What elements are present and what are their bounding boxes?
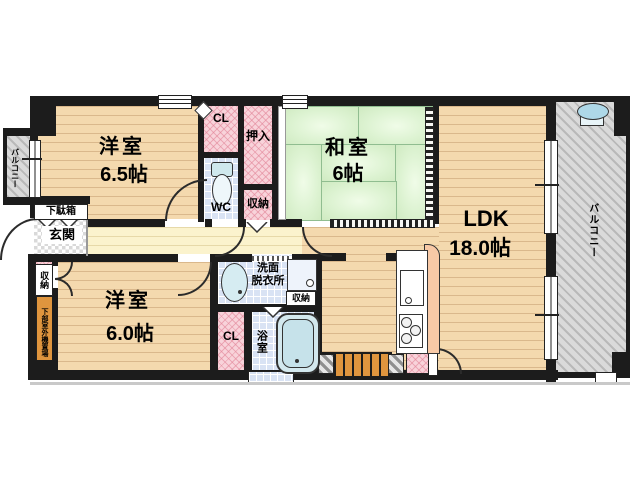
balcony-right-label: バルコニー — [582, 186, 602, 274]
room1-size: 6.5帖 — [62, 162, 186, 188]
wall-corridor-bottom-1 — [28, 254, 178, 262]
kitchen-hatch-right — [388, 354, 404, 374]
fusuma-track-tatami-south[interactable] — [330, 219, 435, 228]
entrance-step-line — [86, 220, 88, 256]
balcony-left-outer-edge — [3, 130, 7, 205]
fusuma-track-tatami-east[interactable] — [425, 107, 434, 220]
room1-name: 洋室 — [62, 134, 182, 160]
tatami-room-size: 6帖 — [300, 162, 396, 186]
balcony-left-top-edge — [3, 128, 38, 136]
closet-top-label: CL — [204, 110, 238, 128]
oshiire-label: 押入 — [241, 128, 275, 146]
window-balcony-right-north[interactable] — [544, 140, 558, 234]
wall-oshiire-storage-divider — [244, 184, 272, 190]
wc-label: WC — [204, 200, 238, 216]
outdoor-unit-label: 下部室外機置場 — [37, 298, 51, 366]
fusuma-track-tatami-west[interactable] — [278, 106, 286, 220]
storage-entry-label: 収納 — [35, 264, 53, 296]
window-latch-mark — [535, 184, 559, 186]
ldk-size: 18.0帖 — [420, 236, 540, 262]
wall-leftcolumn-b — [52, 288, 58, 372]
window-latch-mark — [535, 314, 559, 316]
washroom-label: 洗面脱衣所 — [242, 258, 294, 292]
floor-plan: 洋室 6.5帖 和室 6帖 LDK 18.0帖 洋室 6.0帖 CL 押入 WC… — [0, 0, 640, 480]
window-latch-mark — [22, 158, 42, 160]
kitchen-pink-panel — [406, 352, 430, 374]
wall-cl-wc-divider — [204, 152, 238, 158]
entrance-door-swing[interactable] — [0, 218, 38, 260]
window-top-tatami[interactable] — [282, 95, 308, 109]
tatami-room-name: 和室 — [298, 136, 398, 161]
kitchen-sink-icon — [400, 270, 424, 306]
wall-room2-right — [210, 254, 218, 380]
kitchen-slatted-floor — [334, 352, 392, 378]
balcony-left-label: バルコニー — [8, 140, 22, 196]
storage-washroom-label: 収納 — [286, 291, 316, 306]
window-balcony-right-south[interactable] — [544, 276, 558, 360]
kitchen-hatch-left — [318, 354, 334, 374]
wall-corridor-top-1 — [86, 219, 165, 227]
tatami-mat — [321, 181, 397, 221]
storage-hall-label: 収納 — [241, 195, 275, 213]
entrance-label: 玄関 — [42, 226, 82, 244]
bathroom-label: 浴室 — [253, 320, 269, 364]
closet-bottom-label: CL — [216, 328, 246, 346]
shoe-cabinet-label: 下駄箱 — [34, 204, 88, 220]
plan-shadow — [30, 382, 630, 385]
balcony-right-outer-edge — [626, 96, 630, 378]
bathtub-icon — [276, 313, 320, 374]
balcony-slop-sink-icon — [577, 103, 607, 127]
window-balcony-left[interactable] — [29, 140, 41, 198]
storage-bifold-mark — [246, 220, 268, 231]
balcony-left-bottom-edge — [3, 197, 38, 205]
room2-name: 洋室 — [68, 288, 188, 314]
window-top-room1[interactable] — [158, 95, 192, 109]
room2-size: 6.0帖 — [68, 321, 192, 347]
ldk-name: LDK — [436, 206, 536, 232]
gas-stove-icon — [399, 314, 423, 348]
